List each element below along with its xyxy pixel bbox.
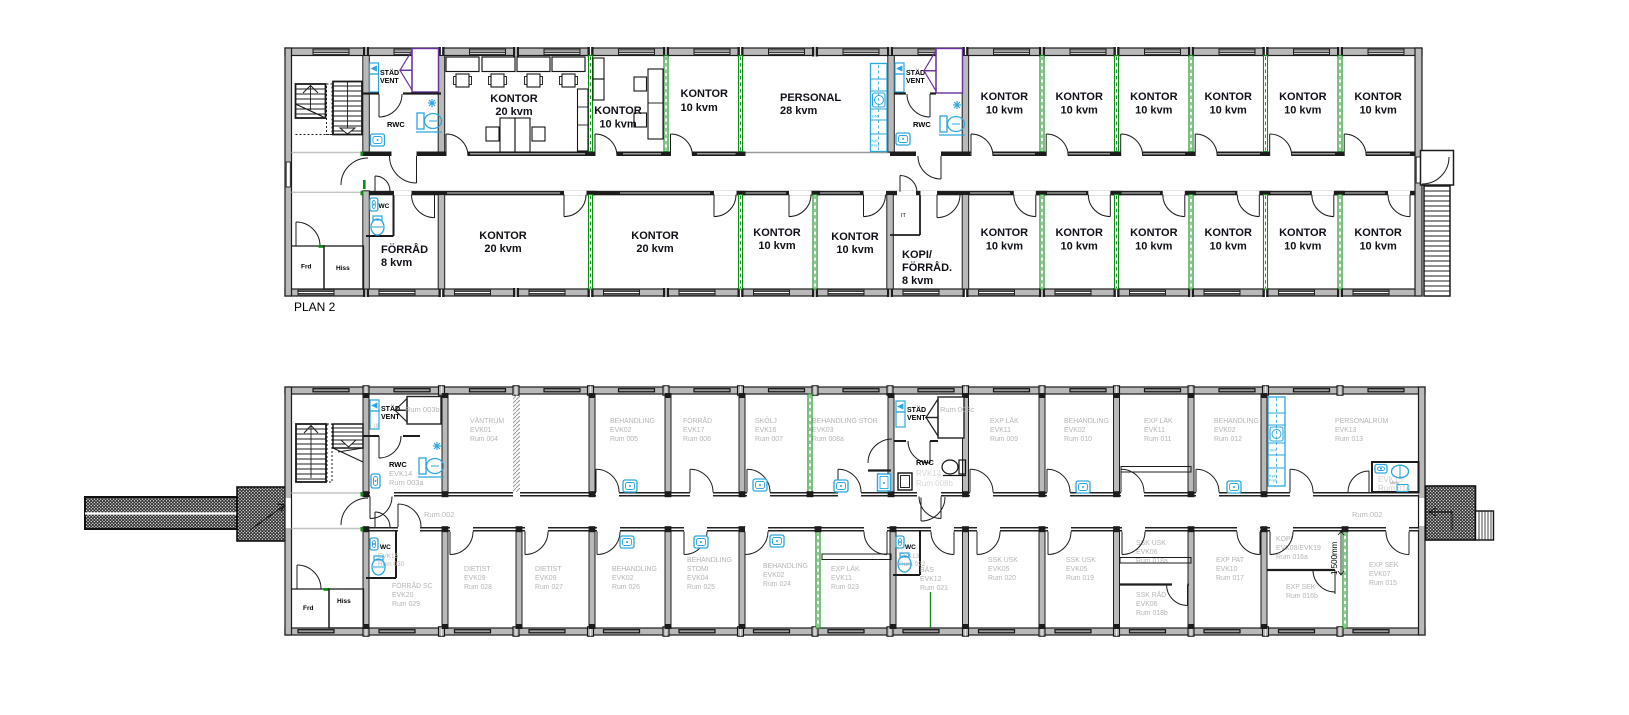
svg-text:STÄD: STÄD	[907, 406, 926, 414]
svg-text:EXP LÄK: EXP LÄK	[831, 565, 860, 573]
svg-text:SSK USK: SSK USK	[1066, 557, 1096, 564]
svg-text:WC: WC	[905, 544, 916, 551]
svg-text:WC: WC	[379, 203, 390, 210]
svg-text:10 kvm: 10 kvm	[836, 244, 874, 256]
svg-text:Rum 003a: Rum 003a	[389, 478, 424, 487]
svg-text:EVK11: EVK11	[1144, 427, 1165, 434]
svg-text:RWC: RWC	[389, 460, 407, 469]
svg-text:BEHANDLING: BEHANDLING	[1214, 418, 1259, 425]
svg-text:Rum 023: Rum 023	[831, 584, 859, 591]
svg-text:EXP SEK: EXP SEK	[1286, 584, 1316, 591]
svg-text:VENT: VENT	[906, 78, 925, 85]
svg-text:BÅS: BÅS	[920, 565, 934, 574]
svg-text:IT: IT	[901, 213, 907, 219]
svg-text:Rum 017: Rum 017	[1216, 575, 1244, 582]
svg-text:EVK01: EVK01	[470, 427, 492, 434]
svg-text:WC: WC	[380, 544, 391, 551]
svg-text:Rum 018a: Rum 018a	[1136, 558, 1168, 565]
svg-text:KOPI/: KOPI/	[902, 249, 932, 261]
svg-text:KONTOR: KONTOR	[1130, 91, 1178, 103]
svg-text:KONTOR: KONTOR	[1130, 227, 1178, 239]
svg-text:Rum 002: Rum 002	[424, 510, 454, 519]
svg-text:18: 18	[373, 424, 379, 430]
svg-text:DM: DM	[1270, 448, 1276, 453]
svg-text:EVK03: EVK03	[812, 427, 834, 434]
svg-text:Rum 010: Rum 010	[1064, 436, 1092, 443]
svg-text:10 kvm: 10 kvm	[1135, 241, 1173, 253]
svg-text:KONTOR: KONTOR	[1055, 227, 1103, 239]
svg-text:KONTOR: KONTOR	[479, 230, 527, 242]
svg-text:Rum 013: Rum 013	[1335, 436, 1363, 443]
svg-text:20 kvm: 20 kvm	[495, 106, 533, 118]
svg-text:EVK13: EVK13	[1335, 427, 1357, 434]
svg-text:Micro: Micro	[1390, 481, 1399, 485]
svg-text:FÖRRÅD SC: FÖRRÅD SC	[392, 581, 433, 590]
svg-text:BEHANDLING STOR: BEHANDLING STOR	[812, 418, 878, 425]
svg-text:Rum 003b: Rum 003b	[405, 405, 440, 414]
svg-text:EVK20: EVK20	[392, 592, 414, 599]
svg-text:10 kvm: 10 kvm	[599, 119, 637, 131]
svg-text:EVK11: EVK11	[831, 575, 852, 582]
svg-text:Rum 029: Rum 029	[392, 601, 420, 608]
svg-text:10 kvm: 10 kvm	[758, 240, 796, 252]
svg-text:FÖRRÅD: FÖRRÅD	[683, 416, 712, 425]
svg-text:Rum 021: Rum 021	[920, 585, 948, 592]
svg-text:Rum 007: Rum 007	[755, 436, 783, 443]
svg-text:1 500mm: 1 500mm	[1330, 541, 1339, 575]
svg-text:BEHANDLING: BEHANDLING	[1064, 418, 1109, 425]
svg-text:8 kvm: 8 kvm	[902, 275, 933, 287]
svg-text:VENT: VENT	[907, 415, 926, 422]
svg-text:Hiss: Hiss	[337, 598, 351, 605]
svg-text:PLAN 2: PLAN 2	[294, 300, 336, 314]
svg-text:EVK11: EVK11	[990, 427, 1011, 434]
svg-text:20 kvm: 20 kvm	[484, 243, 522, 255]
svg-text:10 kvm: 10 kvm	[1359, 241, 1397, 253]
svg-text:EVK07: EVK07	[1369, 571, 1391, 578]
svg-text:FÖRRÅD: FÖRRÅD	[381, 243, 428, 256]
svg-text:Rum 024: Rum 024	[763, 581, 791, 588]
svg-text:KONTOR: KONTOR	[1055, 91, 1103, 103]
svg-text:Rum 008b: Rum 008b	[916, 479, 953, 488]
svg-text:STÄD: STÄD	[380, 69, 399, 77]
svg-text:KONTOR: KONTOR	[1204, 91, 1252, 103]
svg-text:PERSONALRUM: PERSONALRUM	[1335, 418, 1388, 425]
svg-text:Frys: Frys	[872, 143, 880, 148]
svg-text:Rum 011: Rum 011	[1144, 436, 1172, 443]
svg-text:EXP LÄK: EXP LÄK	[1144, 417, 1173, 425]
svg-text:EVK06: EVK06	[1136, 549, 1158, 556]
svg-text:Rum 025: Rum 025	[687, 584, 715, 591]
svg-text:KONTOR: KONTOR	[681, 88, 729, 100]
svg-text:STÄD: STÄD	[906, 69, 925, 77]
svg-text:KONTOR: KONTOR	[594, 105, 642, 117]
svg-text:EVK05: EVK05	[1066, 566, 1088, 573]
svg-text:EVK10: EVK10	[1216, 566, 1238, 573]
svg-text:BEHANDLING: BEHANDLING	[763, 563, 808, 570]
svg-text:Rum 005: Rum 005	[610, 436, 638, 443]
svg-text:Rum 006: Rum 006	[683, 436, 711, 443]
svg-text:KONTOR: KONTOR	[981, 227, 1029, 239]
svg-text:KONTOR: KONTOR	[631, 230, 679, 242]
svg-text:Rum 027: Rum 027	[535, 584, 563, 591]
svg-text:10 kvm: 10 kvm	[1061, 105, 1099, 117]
svg-text:Frys: Frys	[1269, 478, 1277, 483]
svg-text:Frd: Frd	[301, 264, 312, 271]
svg-text:Rum 026: Rum 026	[612, 584, 640, 591]
svg-text:EVK04: EVK04	[687, 575, 709, 582]
svg-text:Rum 019: Rum 019	[1066, 575, 1094, 582]
svg-text:10 kvm: 10 kvm	[1284, 105, 1322, 117]
svg-text:EVK14: EVK14	[389, 469, 412, 478]
svg-text:SSK RÅD: SSK RÅD	[1136, 590, 1166, 599]
svg-text:10 kvm: 10 kvm	[1359, 105, 1397, 117]
svg-text:RWC: RWC	[916, 458, 934, 467]
svg-text:10 kvm: 10 kvm	[1210, 241, 1248, 253]
svg-text:Rum 004: Rum 004	[470, 436, 498, 443]
svg-text:Rum 015: Rum 015	[1369, 580, 1397, 587]
svg-text:DIETIST: DIETIST	[535, 566, 562, 573]
svg-text:10 kvm: 10 kvm	[986, 105, 1024, 117]
svg-text:BEHANDLING: BEHANDLING	[612, 566, 657, 573]
svg-text:RWC: RWC	[387, 120, 405, 129]
svg-text:SKÖLJ: SKÖLJ	[755, 417, 777, 425]
svg-text:EXP SEK: EXP SEK	[1369, 562, 1399, 569]
svg-text:Rum 009: Rum 009	[990, 436, 1018, 443]
svg-text:Rum 020: Rum 020	[988, 575, 1016, 582]
svg-text:BEHANDLING: BEHANDLING	[610, 418, 655, 425]
svg-text:STOMI: STOMI	[687, 566, 709, 573]
svg-text:EVK02: EVK02	[612, 575, 634, 582]
svg-text:EVK02: EVK02	[763, 572, 785, 579]
svg-text:KONTOR: KONTOR	[490, 93, 538, 105]
svg-text:Rum 018b: Rum 018b	[1136, 610, 1168, 617]
svg-text:EVK12: EVK12	[920, 576, 942, 583]
svg-text:FÖRRÅD.: FÖRRÅD.	[902, 261, 952, 274]
svg-text:KONTOR: KONTOR	[1279, 91, 1327, 103]
svg-text:Hiss: Hiss	[336, 265, 350, 272]
svg-text:DM: DM	[872, 114, 878, 119]
svg-text:Rum 008c: Rum 008c	[940, 405, 974, 414]
svg-text:KONTOR: KONTOR	[1279, 227, 1327, 239]
svg-text:Rum 008a: Rum 008a	[812, 436, 844, 443]
svg-text:BEHANDLING: BEHANDLING	[687, 557, 732, 564]
svg-text:EXP PAT: EXP PAT	[1216, 557, 1245, 564]
svg-text:KONTOR: KONTOR	[1354, 227, 1402, 239]
svg-text:VÄNTRUM: VÄNTRUM	[470, 417, 504, 425]
svg-text:10 kvm: 10 kvm	[681, 102, 719, 114]
svg-text:10 kvm: 10 kvm	[1061, 241, 1099, 253]
svg-text:EVK09: EVK09	[464, 575, 486, 582]
svg-text:EVK17: EVK17	[683, 427, 705, 434]
svg-text:10 kvm: 10 kvm	[1284, 241, 1322, 253]
svg-text:KONTOR: KONTOR	[831, 231, 879, 243]
svg-text:Rum 028: Rum 028	[464, 584, 492, 591]
svg-text:EVK09: EVK09	[535, 575, 557, 582]
svg-text:KONTOR: KONTOR	[981, 91, 1029, 103]
svg-text:KONTOR: KONTOR	[753, 227, 801, 239]
svg-text:Frd: Frd	[303, 605, 314, 612]
svg-text:10 kvm: 10 kvm	[986, 241, 1024, 253]
svg-text:EVK05: EVK05	[988, 566, 1010, 573]
svg-text:KONTOR: KONTOR	[1354, 91, 1402, 103]
svg-text:RVK14: RVK14	[916, 469, 942, 478]
svg-text:28 kvm: 28 kvm	[780, 105, 818, 117]
svg-text:RWC: RWC	[913, 120, 931, 129]
svg-text:EVK16: EVK16	[755, 427, 777, 434]
svg-text:10 kvm: 10 kvm	[1135, 105, 1173, 117]
svg-text:EVK06: EVK06	[1136, 601, 1158, 608]
svg-text:EVK02: EVK02	[1064, 427, 1086, 434]
svg-text:SSK USK: SSK USK	[988, 557, 1018, 564]
svg-text:EXP LÄK: EXP LÄK	[990, 417, 1019, 425]
svg-text:8 kvm: 8 kvm	[381, 257, 412, 269]
svg-text:EVK02: EVK02	[610, 427, 632, 434]
svg-text:EVK02: EVK02	[1214, 427, 1236, 434]
svg-text:VENT: VENT	[380, 78, 399, 85]
svg-text:20 kvm: 20 kvm	[636, 243, 674, 255]
svg-text:VENT: VENT	[381, 414, 400, 421]
svg-text:Rum 002: Rum 002	[1352, 510, 1382, 519]
svg-text:10 kvm: 10 kvm	[1210, 105, 1248, 117]
svg-text:Rum 016b: Rum 016b	[1286, 593, 1318, 600]
svg-text:DIETIST: DIETIST	[464, 566, 491, 573]
svg-text:Rum 016a: Rum 016a	[1276, 554, 1308, 561]
svg-text:PERSONAL: PERSONAL	[780, 92, 841, 104]
svg-text:KONTOR: KONTOR	[1204, 227, 1252, 239]
svg-text:Rum 012: Rum 012	[1214, 436, 1242, 443]
